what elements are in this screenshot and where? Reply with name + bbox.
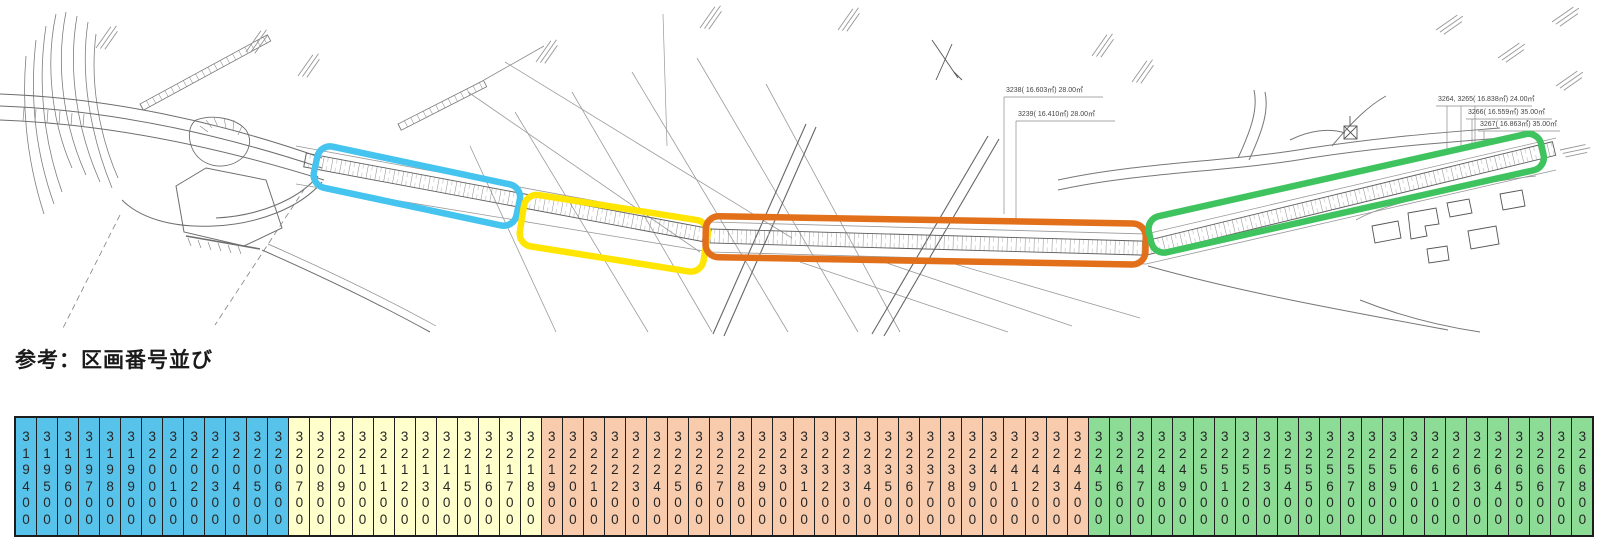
parcel-cell-324600: 3 2 4 6 0 0 — [1109, 418, 1130, 535]
map-annotation: 3264, 3265( 16.838㎡) 24.00㎡ — [1438, 96, 1535, 104]
parcel-cell-320900: 3 2 0 9 0 0 — [330, 418, 351, 535]
parcel-cell-319400: 3 1 9 4 0 0 — [16, 418, 36, 535]
parcel-cell-322300: 3 2 2 3 0 0 — [625, 418, 646, 535]
parcel-cell-324200: 3 2 4 2 0 0 — [1025, 418, 1046, 535]
parcel-cell-325300: 3 2 5 3 0 0 — [1256, 418, 1277, 535]
parcel-cell-325800: 3 2 5 8 0 0 — [1361, 418, 1382, 535]
parcel-cell-325100: 3 2 5 1 0 0 — [1214, 418, 1235, 535]
parcel-cell-320700: 3 2 0 7 0 0 — [288, 418, 309, 535]
parcel-cell-323800: 3 2 3 8 0 0 — [940, 418, 961, 535]
parcel-cell-324000: 3 2 4 0 0 0 — [982, 418, 1003, 535]
parcel-cell-321200: 3 2 1 2 0 0 — [394, 418, 415, 535]
page: 3238( 16.603㎡) 28.00㎡3239( 16.410㎡) 28.0… — [0, 0, 1608, 545]
field-boundary-lines — [468, 58, 1140, 332]
parcel-cell-324400: 3 2 4 4 0 0 — [1067, 418, 1088, 535]
contour-lines — [25, 12, 118, 214]
parcel-cell-323600: 3 2 3 6 0 0 — [898, 418, 919, 535]
parcel-cell-321500: 3 2 1 5 0 0 — [457, 418, 478, 535]
parcel-cell-323900: 3 2 3 9 0 0 — [961, 418, 982, 535]
interchange-roads — [0, 94, 436, 332]
parcel-cell-325500: 3 2 5 5 0 0 — [1298, 418, 1319, 535]
parcel-cell-320400: 3 2 0 4 0 0 — [225, 418, 246, 535]
parcel-cell-323100: 3 2 3 1 0 0 — [793, 418, 814, 535]
parcel-cell-325600: 3 2 5 6 0 0 — [1319, 418, 1340, 535]
map-annotation: 3238( 16.603㎡) 28.00㎡ — [1006, 87, 1083, 95]
page-title: 参考：区画番号並び — [15, 344, 213, 374]
parcel-cell-320200: 3 2 0 2 0 0 — [183, 418, 204, 535]
map-annotation: 3267( 16.863㎡) 35.00㎡ — [1480, 121, 1557, 129]
micro-text-marks — [96, 3, 1591, 157]
parcel-cell-321700: 3 2 1 7 0 0 — [499, 418, 520, 535]
parcel-cell-324700: 3 2 4 7 0 0 — [1130, 418, 1151, 535]
parcel-cell-319500: 3 1 9 5 0 0 — [36, 418, 57, 535]
site-plan-linework — [0, 0, 1608, 340]
parcel-cell-319900: 3 1 9 9 0 0 — [120, 418, 141, 535]
parcel-cell-320100: 3 2 0 1 0 0 — [162, 418, 183, 535]
parcel-cell-319700: 3 1 9 7 0 0 — [78, 418, 99, 535]
parcel-cell-326600: 3 2 6 6 0 0 — [1529, 418, 1550, 535]
parcel-cell-321000: 3 2 1 0 0 0 — [352, 418, 373, 535]
parcel-cell-321900: 3 2 1 9 0 0 — [541, 418, 562, 535]
parcel-cell-321400: 3 2 1 4 0 0 — [436, 418, 457, 535]
parcel-cell-320600: 3 2 0 6 0 0 — [267, 418, 288, 535]
parcel-cell-322200: 3 2 2 2 0 0 — [604, 418, 625, 535]
parcel-cell-326700: 3 2 6 7 0 0 — [1550, 418, 1571, 535]
parcel-cell-324900: 3 2 4 9 0 0 — [1172, 418, 1193, 535]
survey-cross-icon — [932, 40, 962, 80]
parcel-cell-322100: 3 2 2 1 0 0 — [583, 418, 604, 535]
parcel-cell-323400: 3 2 3 4 0 0 — [856, 418, 877, 535]
parcel-cell-321100: 3 2 1 1 0 0 — [373, 418, 394, 535]
parcel-cell-324800: 3 2 4 8 0 0 — [1151, 418, 1172, 535]
parcel-strip — [304, 142, 1556, 255]
parcel-cell-320000: 3 2 0 0 0 0 — [141, 418, 162, 535]
map-annotation: 3266( 16.559㎡) 35.00㎡ — [1468, 109, 1545, 117]
parcel-cell-322900: 3 2 2 9 0 0 — [751, 418, 772, 535]
parcel-cell-319600: 3 1 9 6 0 0 — [57, 418, 78, 535]
parcel-cell-324500: 3 2 4 5 0 0 — [1088, 418, 1109, 535]
parcel-cell-326300: 3 2 6 3 0 0 — [1466, 418, 1487, 535]
parcel-cell-325700: 3 2 5 7 0 0 — [1340, 418, 1361, 535]
parcel-cell-322400: 3 2 2 4 0 0 — [646, 418, 667, 535]
parcel-cell-322800: 3 2 2 8 0 0 — [730, 418, 751, 535]
parcel-cell-326800: 3 2 6 8 0 0 — [1571, 418, 1592, 535]
parcel-cell-320800: 3 2 0 8 0 0 — [309, 418, 330, 535]
parcel-cell-325200: 3 2 5 2 0 0 — [1235, 418, 1256, 535]
parcel-cell-324300: 3 2 4 3 0 0 — [1046, 418, 1067, 535]
parcel-cell-322500: 3 2 2 5 0 0 — [667, 418, 688, 535]
parcel-number-table: 3 1 9 4 0 03 1 9 5 0 03 1 9 6 0 03 1 9 7… — [14, 416, 1594, 537]
parcel-cell-325000: 3 2 5 0 0 0 — [1193, 418, 1214, 535]
parcel-cell-323200: 3 2 3 2 0 0 — [814, 418, 835, 535]
parcel-cell-323300: 3 2 3 3 0 0 — [835, 418, 856, 535]
parcel-cell-323700: 3 2 3 7 0 0 — [919, 418, 940, 535]
parcel-cell-326500: 3 2 6 5 0 0 — [1508, 418, 1529, 535]
parcel-cell-321800: 3 2 1 8 0 0 — [520, 418, 541, 535]
parcel-cell-326200: 3 2 6 2 0 0 — [1445, 418, 1466, 535]
parcel-cell-325400: 3 2 5 4 0 0 — [1277, 418, 1298, 535]
parcel-cell-326400: 3 2 6 4 0 0 — [1487, 418, 1508, 535]
site-plan-drawing: 3238( 16.603㎡) 28.00㎡3239( 16.410㎡) 28.0… — [0, 0, 1608, 340]
crossing-roads — [663, 14, 999, 336]
parcel-cell-319800: 3 1 9 8 0 0 — [99, 418, 120, 535]
parcel-cell-325900: 3 2 5 9 0 0 — [1382, 418, 1403, 535]
parcel-cell-326000: 3 2 6 0 0 0 — [1403, 418, 1424, 535]
parcel-cell-320300: 3 2 0 3 0 0 — [204, 418, 225, 535]
parcel-cell-320500: 3 2 0 5 0 0 — [246, 418, 267, 535]
parcel-cell-322000: 3 2 2 0 0 0 — [562, 418, 583, 535]
parcel-cell-323000: 3 2 3 0 0 0 — [772, 418, 793, 535]
parcel-cell-323500: 3 2 3 5 0 0 — [877, 418, 898, 535]
ramp-bridges — [140, 35, 544, 130]
parcel-cell-324100: 3 2 4 1 0 0 — [1003, 418, 1024, 535]
parcel-cell-322700: 3 2 2 7 0 0 — [709, 418, 730, 535]
parcel-cell-322600: 3 2 2 6 0 0 — [688, 418, 709, 535]
parcel-cell-321300: 3 2 1 3 0 0 — [415, 418, 436, 535]
parcel-cell-326100: 3 2 6 1 0 0 — [1424, 418, 1445, 535]
parcel-cell-321600: 3 2 1 6 0 0 — [478, 418, 499, 535]
map-annotation: 3239( 16.410㎡) 28.00㎡ — [1018, 111, 1095, 119]
